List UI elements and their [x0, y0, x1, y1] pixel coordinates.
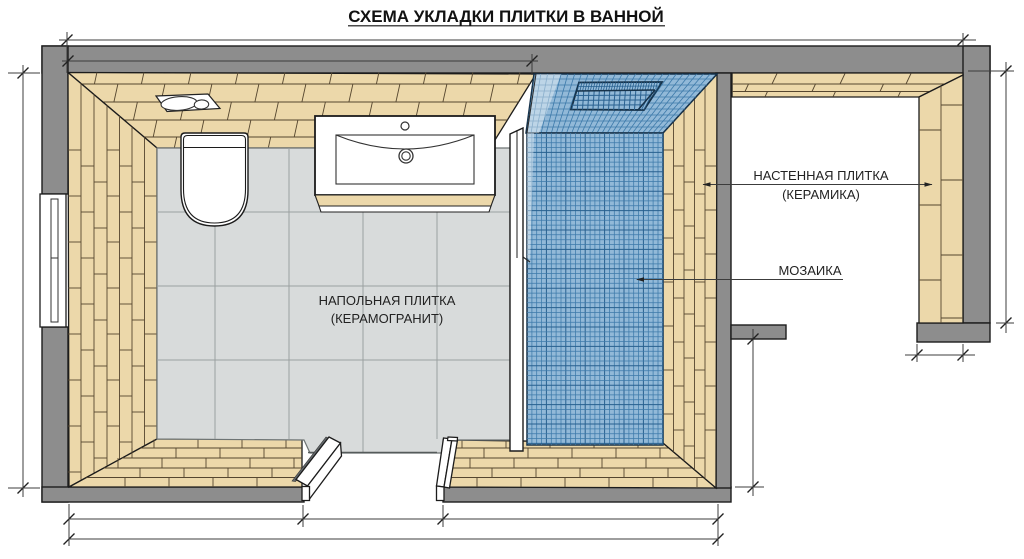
- svg-text:(КЕРАМИКА): (КЕРАМИКА): [782, 187, 860, 202]
- svg-text:(КЕРАМОГРАНИТ): (КЕРАМОГРАНИТ): [331, 311, 444, 326]
- svg-text:СХЕМА УКЛАДКИ ПЛИТКИ В ВАННОЙ: СХЕМА УКЛАДКИ ПЛИТКИ В ВАННОЙ: [348, 7, 663, 26]
- svg-text:МОЗАИКА: МОЗАИКА: [778, 263, 841, 278]
- svg-text:НАСТЕННАЯ ПЛИТКА: НАСТЕННАЯ ПЛИТКА: [753, 168, 889, 183]
- svg-text:НАПОЛЬНАЯ ПЛИТКА: НАПОЛЬНАЯ ПЛИТКА: [319, 293, 456, 308]
